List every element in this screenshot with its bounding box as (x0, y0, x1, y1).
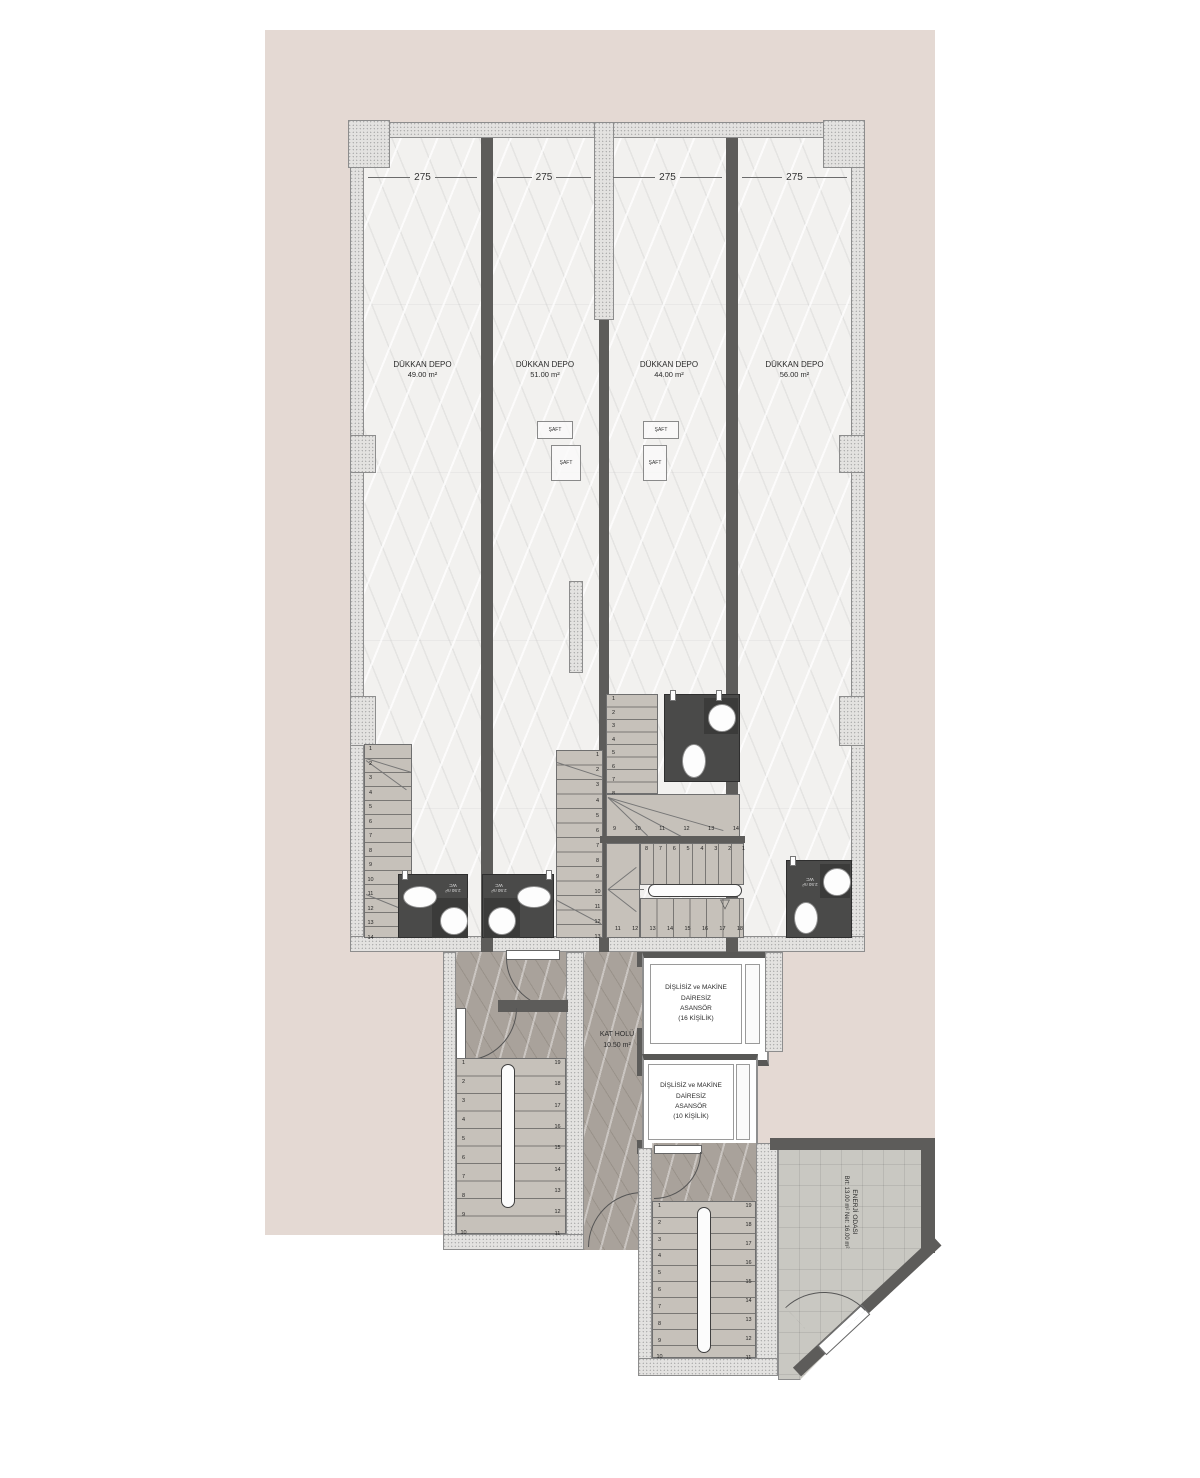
wc-label: 2.50 m² WC (798, 876, 822, 887)
partition-wall-1 (481, 138, 493, 936)
stair-tread-number: 12 (594, 920, 600, 926)
stair-shop2-numbers: 12345678910111213 (593, 750, 602, 944)
dimension-label: 275 (786, 172, 803, 183)
stair-tread-number: 13 (554, 1189, 560, 1195)
stair-tread-number: 14 (745, 1299, 751, 1305)
stair-tread-number: 5 (612, 751, 615, 757)
stair-tread-number: 10 (656, 1355, 662, 1361)
tower1-stair-numbers-right: 191817161514131211 (553, 1058, 562, 1240)
stair-tread-number: 12 (367, 907, 373, 913)
stair-tread-number: 11 (368, 892, 374, 898)
stair-tread-number: 5 (462, 1137, 465, 1143)
stair-tread-number: 8 (596, 859, 599, 865)
shop-3-label: DÜKKAN DEPO 44.00 m² (614, 360, 724, 380)
door-jamb (790, 856, 796, 866)
stair-tread-number: 13 (708, 827, 714, 833)
stair-tread-number: 3 (714, 847, 717, 853)
stair-tread-number: 1 (462, 1061, 465, 1067)
stair-tread-number: 9 (596, 875, 599, 881)
stair-tread-number: 5 (596, 814, 599, 820)
stair-core-upper-numbers: 12345678 (609, 694, 618, 800)
stair-core-turn-numbers: 91011121314 (610, 824, 742, 836)
stair-tread-number: 4 (700, 847, 703, 853)
stair-tread-number: 7 (462, 1175, 465, 1181)
stair-fan-line (608, 867, 637, 890)
dimension-label: 275 (536, 172, 553, 183)
stair-tread-number: 3 (596, 783, 599, 789)
stair-tread-number: 12 (684, 827, 690, 833)
stair-tread-number: 6 (673, 847, 676, 853)
stair-tread-number: 9 (658, 1339, 661, 1345)
wc-area: 2.50 m² (486, 887, 512, 892)
stair-tread-number: 15 (684, 927, 690, 933)
elevator-1-line1: DİŞLİSİZ ve MAKİNE DAİRESİZ (651, 983, 741, 1004)
dimension-label: 275 (414, 172, 431, 183)
stair-tread-number: 16 (745, 1261, 751, 1267)
stair-tread-number: 5 (687, 847, 690, 853)
wall-stub-3 (726, 936, 738, 952)
stair-tread-number: 14 (667, 927, 673, 933)
shop-3-area: 44.00 m² (614, 370, 724, 380)
stair-tread-number: 10 (635, 827, 641, 833)
elevator-1-line3: (16 KİŞİLİK) (651, 1014, 741, 1024)
stair-tread-number: 7 (658, 1305, 661, 1311)
stair-tread-number: 5 (369, 805, 372, 811)
wc-room-2: 2.50 m² WC (482, 874, 554, 938)
stair-tread-number: 4 (369, 791, 372, 797)
sink-icon (708, 704, 736, 732)
stair-tread-number: 11 (555, 1232, 561, 1238)
stair-tread-number: 1 (596, 753, 599, 759)
stair-tread-number: 18 (745, 1223, 751, 1229)
stair-tread-number: 11 (746, 1356, 752, 1362)
pilaster-top-right (823, 120, 865, 168)
mid-column (569, 581, 583, 673)
wc-name: WC (798, 876, 822, 881)
stair-tread-number: 10 (594, 890, 600, 896)
stair-tread-number: 12 (632, 927, 638, 933)
wc-name: WC (486, 882, 512, 887)
stair-tread-number: 14 (554, 1168, 560, 1174)
stair-tread-number: 7 (369, 834, 372, 840)
stair-tread-number: 11 (615, 927, 621, 933)
energy-room-detail: Brt: 13.00 m² Net: 16.00 m² (841, 1176, 850, 1249)
stair-tread-number: 9 (613, 827, 616, 833)
stair-shop1-numbers: 1234567891011121314 (366, 744, 375, 944)
wc-area: 2.50 m² (798, 881, 822, 886)
stair-tread-number: 7 (596, 844, 599, 850)
stair-tread-number: 6 (596, 829, 599, 835)
stair-tread-number: 11 (659, 827, 665, 833)
stair-tread-number: 8 (658, 1322, 661, 1328)
stair-tread-number: 14 (733, 827, 739, 833)
stair-tread-number: 3 (612, 724, 615, 730)
stair-tread-number: 13 (367, 921, 373, 927)
shop-4-label: DÜKKAN DEPO 56.00 m² (740, 360, 849, 380)
sink-icon (488, 907, 516, 935)
stair-tread-number: 3 (658, 1238, 661, 1244)
shaft-box: ŞAFT (643, 421, 679, 439)
tower1-handrail (501, 1064, 515, 1208)
stair-tread-number: 10 (460, 1231, 466, 1237)
stair-tread-number: 9 (462, 1213, 465, 1219)
elevator-1-door-track (745, 964, 760, 1044)
shaft-label: ŞAFT (655, 427, 668, 433)
wc-room-1: 2.50 m² WC (398, 874, 468, 938)
stair-tread-number: 1 (658, 1204, 661, 1210)
stair-tread-number: 2 (728, 847, 731, 853)
stair-tread-number: 2 (596, 768, 599, 774)
stair-direction-arrow-icon: ▽ (720, 896, 730, 912)
shaft-box: ŞAFT (537, 421, 573, 439)
energy-room-label: ENERJİ ODASI Brt: 13.00 m² Net: 16.00 m² (820, 1142, 880, 1282)
pilaster-left-mid (350, 435, 376, 473)
floor-plan-canvas: 275 275 275 275 DÜKKAN DEPO 49.00 m² DÜK… (0, 0, 1200, 1478)
stair-tread-number: 6 (462, 1156, 465, 1162)
stair-tread-number: 7 (659, 847, 662, 853)
elevator-1-cab: DİŞLİSİZ ve MAKİNE DAİRESİZ ASANSÖR (16 … (650, 964, 742, 1044)
shop-4-area: 56.00 m² (740, 370, 849, 380)
wall-right (851, 138, 865, 950)
dimension-bay-3: 275 (613, 172, 722, 183)
elevator-side-wall (765, 952, 783, 1052)
stair-tread-number: 12 (554, 1210, 560, 1216)
door-jamb (716, 690, 722, 701)
stair-tread-number: 2 (462, 1080, 465, 1086)
wc-label: 2.50 m² WC (440, 882, 466, 893)
stair-tread-number: 9 (369, 863, 372, 869)
dimension-bay-2: 275 (497, 172, 591, 183)
stair-fan-line (608, 889, 637, 912)
stair-tread-number: 1 (742, 847, 745, 853)
stair-tread-number: 16 (702, 927, 708, 933)
stair-tread-number: 7 (612, 778, 615, 784)
stair-tread-number: 15 (554, 1146, 560, 1152)
stair-tread-number: 15 (745, 1280, 751, 1286)
stair-tread-number: 12 (745, 1337, 751, 1343)
wc-label: 2.50 m² WC (486, 882, 512, 893)
stair-tread-number: 2 (658, 1221, 661, 1227)
toilet-icon (794, 902, 818, 934)
stair-tread-number: 1 (369, 747, 372, 753)
sink-icon (440, 907, 468, 935)
stair-tread-number: 17 (719, 927, 725, 933)
stair-tread-number: 2 (369, 762, 372, 768)
shop-2-label: DÜKKAN DEPO 51.00 m² (495, 360, 595, 380)
tower1-stair-numbers-left: 12345678910 (459, 1058, 468, 1240)
dimension-label: 275 (659, 172, 676, 183)
stair-tread-number: 17 (554, 1104, 560, 1110)
stair-tread-number: 19 (745, 1204, 751, 1210)
toilet-icon (403, 886, 437, 908)
stair-tread-number: 6 (612, 765, 615, 771)
elevator-2-line2: ASANSÖR (649, 1102, 733, 1112)
shaft-label: ŞAFT (549, 427, 562, 433)
wc-room-3 (664, 694, 740, 782)
stair-fan-line (608, 889, 644, 890)
stair-tread-number: 8 (645, 847, 648, 853)
shop-2-name: DÜKKAN DEPO (495, 360, 595, 370)
wall-stub-1 (481, 936, 493, 952)
pilaster-right-low (839, 696, 865, 746)
stair-tread-number: 6 (369, 820, 372, 826)
tower2-stair-numbers-right: 191817161514131211 (744, 1201, 753, 1364)
dimension-bay-1: 275 (368, 172, 477, 183)
stair-tread-number: 4 (612, 738, 615, 744)
tower2-stair-numbers-left: 12345678910 (655, 1201, 664, 1364)
shop-3-name: DÜKKAN DEPO (614, 360, 724, 370)
stair-tread-number: 4 (462, 1118, 465, 1124)
tower1-wall-right (566, 952, 584, 1250)
toilet-icon (682, 744, 706, 778)
elevator-2-line3: (10 KİŞİLİK) (649, 1112, 733, 1122)
stair-tread-number: 8 (369, 849, 372, 855)
dimension-bay-4: 275 (742, 172, 847, 183)
shaft-label: ŞAFT (649, 460, 662, 466)
shaft-box: ŞAFT (551, 445, 581, 481)
tower2-wall-right (756, 1143, 778, 1376)
stair-tread-number: 18 (554, 1082, 560, 1088)
stair-tread-number: 1 (612, 697, 615, 703)
stair-tread-number: 6 (658, 1288, 661, 1294)
stair-tread-number: 13 (745, 1318, 751, 1324)
stair-tread-number: 13 (650, 927, 656, 933)
tower2-wall-left (638, 1148, 652, 1374)
shop-1-label: DÜKKAN DEPO 49.00 m² (366, 360, 479, 380)
pilaster-top-left (348, 120, 390, 168)
stair-tread-number: 4 (596, 799, 599, 805)
energy-room-name: ENERJİ ODASI (850, 1189, 860, 1234)
door-jamb (670, 690, 676, 701)
tower2-handrail (697, 1207, 711, 1353)
shaft-box: ŞAFT (643, 445, 667, 481)
stair-tread-number: 18 (737, 927, 743, 933)
wc-room-4: 2.50 m² WC (786, 860, 852, 938)
elevator-2-cab: DİŞLİSİZ ve MAKİNE DAİRESİZ ASANSÖR (10 … (648, 1064, 734, 1140)
stair-tread-number: 11 (595, 905, 601, 911)
stair-tread-number: 3 (369, 776, 372, 782)
stair-tread-number: 2 (612, 711, 615, 717)
pilaster-right-mid (839, 435, 865, 473)
elevator-1-line2: ASANSÖR (651, 1004, 741, 1014)
stair-tread-number: 14 (367, 936, 373, 942)
pilaster-left-low (350, 696, 376, 746)
shop-2-area: 51.00 m² (495, 370, 595, 380)
stair-tread-number: 17 (745, 1242, 751, 1248)
center-wall-pier (594, 122, 614, 320)
stair-tread-number: 8 (462, 1194, 465, 1200)
stair-tread-number: 19 (554, 1061, 560, 1067)
door-jamb (546, 870, 552, 880)
stair-tread-number: 16 (554, 1125, 560, 1131)
toilet-icon (517, 886, 551, 908)
shop-1-name: DÜKKAN DEPO (366, 360, 479, 370)
shaft-label: ŞAFT (560, 460, 573, 466)
wall-left (350, 138, 364, 950)
shop-1-area: 49.00 m² (366, 370, 479, 380)
stair-tread-number: 4 (658, 1254, 661, 1260)
sink-icon (823, 868, 851, 896)
elevator-2-door-track (736, 1064, 750, 1140)
stair-core-divider-wall (600, 836, 745, 843)
wc-name: WC (440, 882, 466, 887)
stair-tread-number: 10 (367, 878, 373, 884)
stair-tread-number: 3 (462, 1099, 465, 1105)
tower1-wall-left (443, 952, 456, 1248)
stair-tread-number: 13 (594, 935, 600, 941)
elevator-2-line1: DİŞLİSİZ ve MAKİNE DAİRESİZ (649, 1081, 733, 1102)
stair-core-bottom-numbers: 1112131415161718 (612, 924, 746, 935)
stair-core-top-numbers: 87654321 (642, 845, 748, 855)
stair-tread-number: 5 (658, 1271, 661, 1277)
door-jamb (402, 870, 408, 880)
shop-4-name: DÜKKAN DEPO (740, 360, 849, 370)
wc-area: 2.50 m² (440, 887, 466, 892)
